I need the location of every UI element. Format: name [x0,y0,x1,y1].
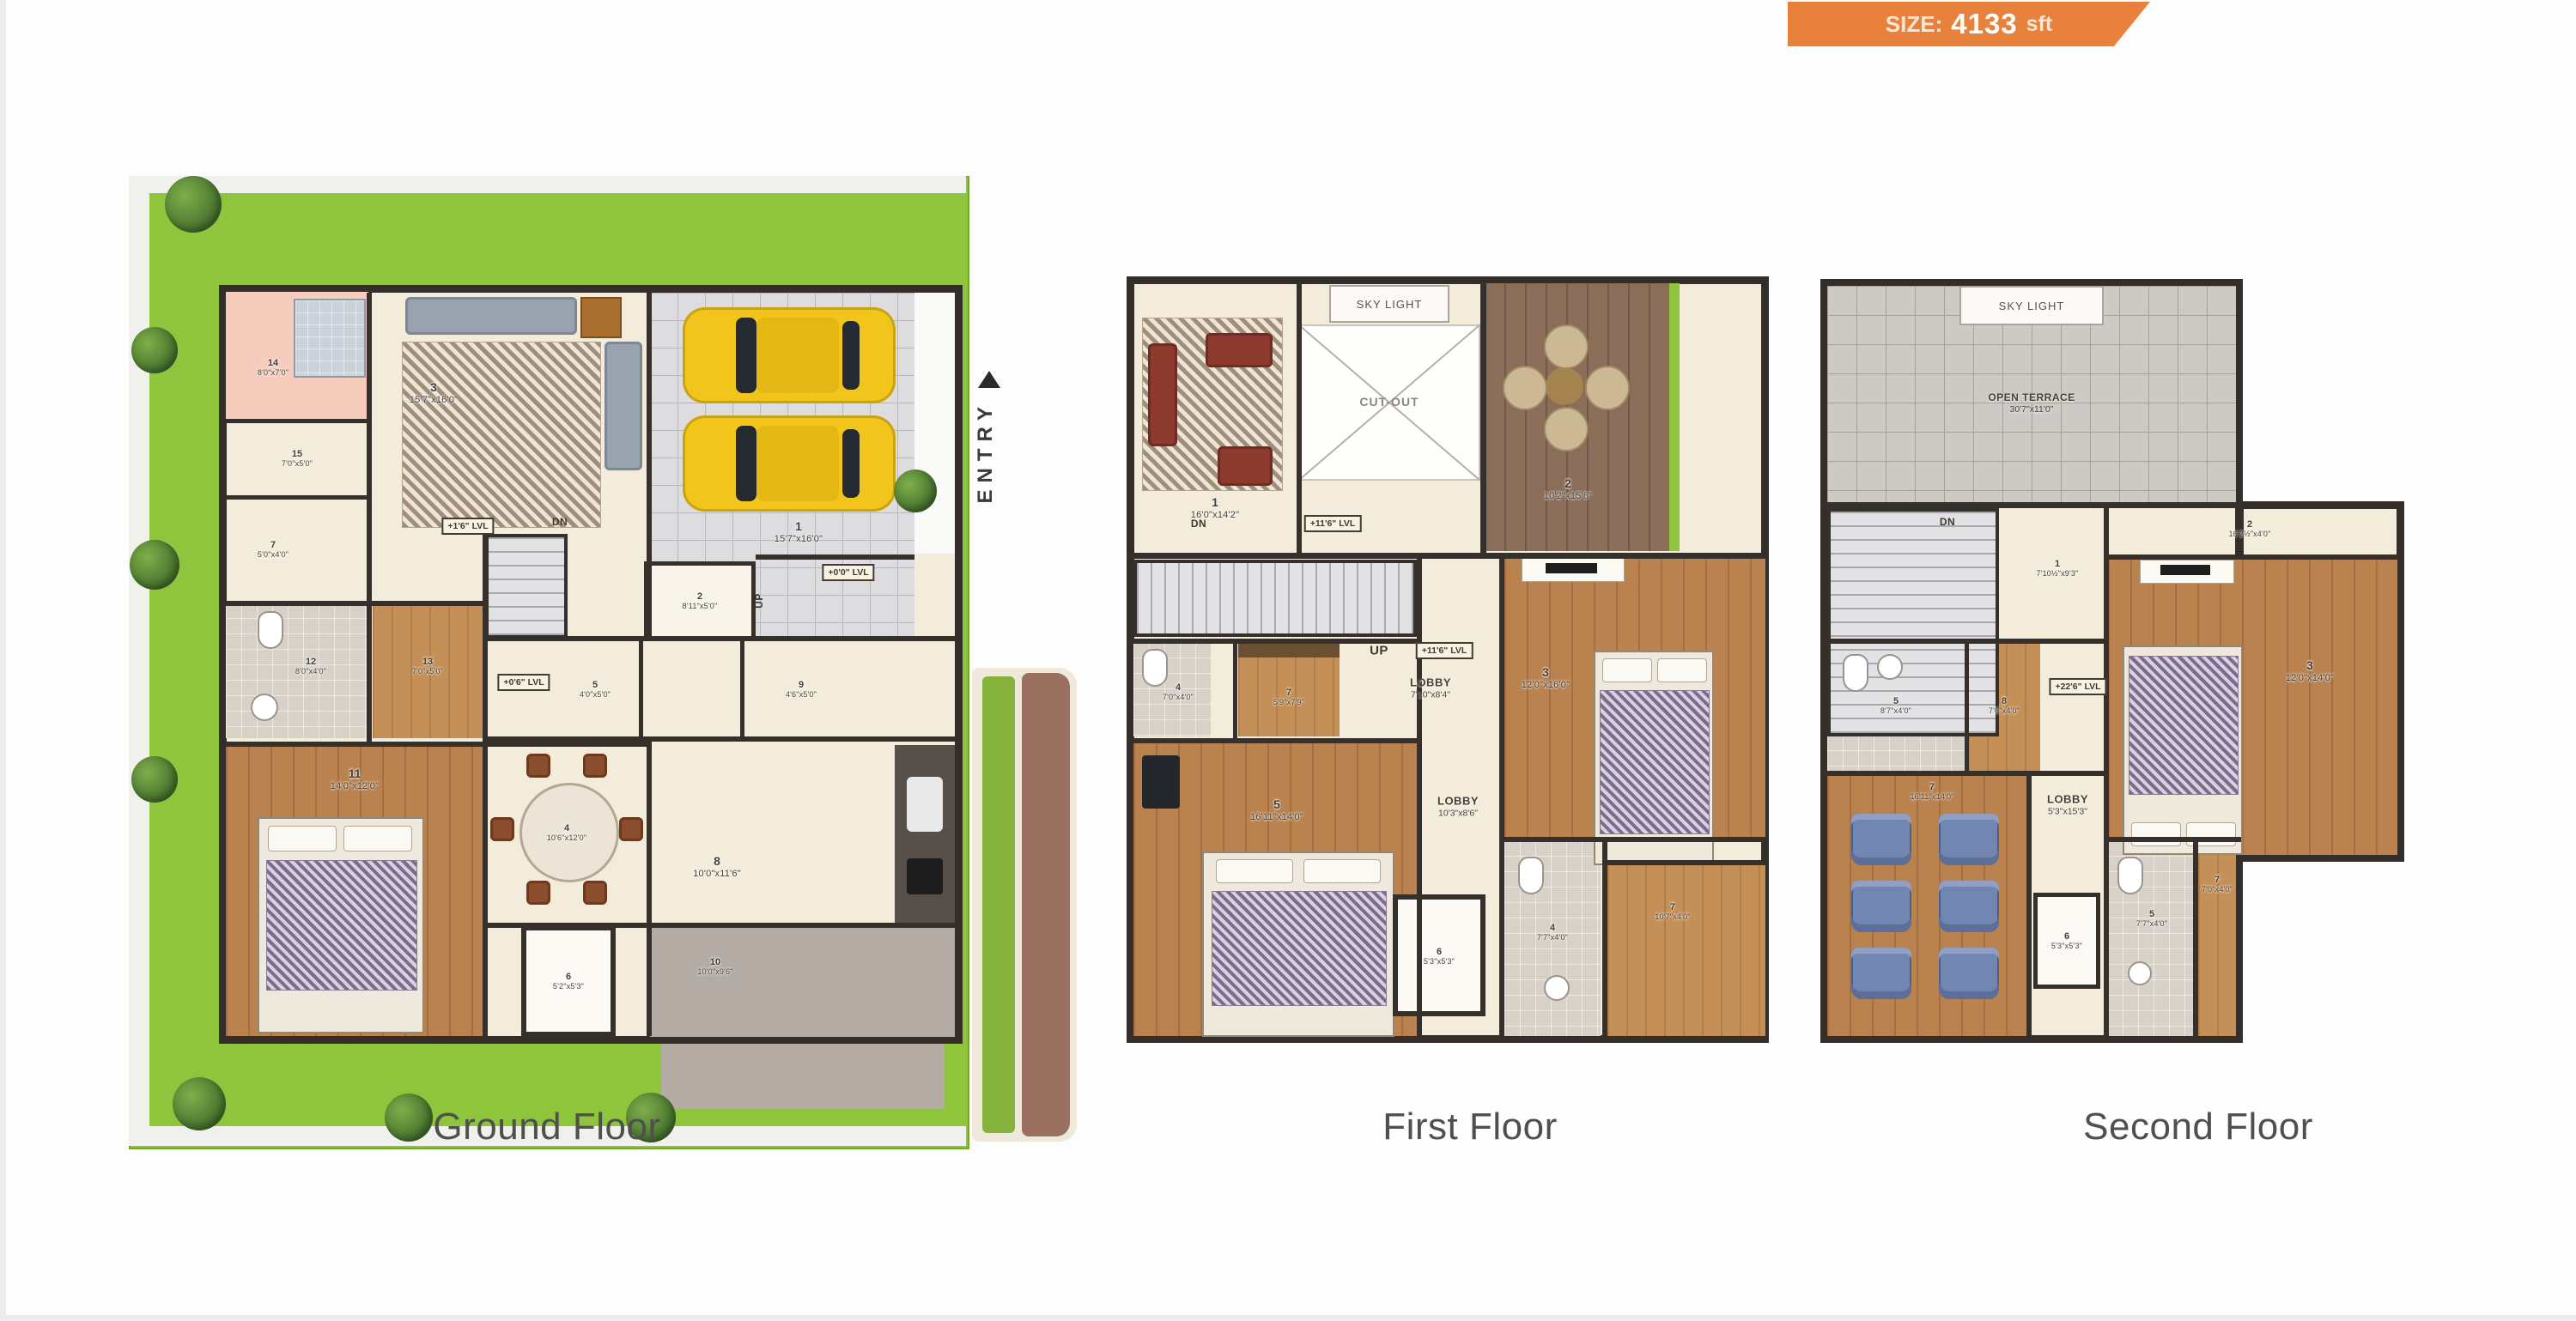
room-dims: 7'0"x4'0" [1163,693,1194,701]
tv-icon [2160,565,2210,575]
recliner-icon [1851,814,1911,865]
room-label-bedroom5: 5 16'11"x14'0" [1250,798,1303,822]
room-dims: 10'6"x12'0" [547,833,587,842]
sofa-icon [605,342,642,470]
room-number: 6 [1437,947,1442,957]
room-dims: 10'0"x11'6" [693,869,741,879]
room-number: 7 [1670,902,1675,912]
room-dims: 5'0"x4'0" [258,550,289,559]
room-number: 4 [564,823,569,833]
wall [1499,837,1765,842]
stair-up-label: UP [753,593,765,609]
sofa-icon [405,297,577,335]
room-dims: 12'0"x16'0" [1522,680,1570,690]
room-dims: 16'11"x14'0" [1910,792,1953,801]
room-dims: 12'0"x14'0" [2286,673,2334,683]
room-number: 3 [2306,659,2313,673]
room-number: 11 [349,767,361,781]
side-strip [914,293,955,554]
lobby-name: LOBBY [1437,796,1479,809]
lobby-name: LOBBY [2047,794,2088,807]
wall [1820,502,2243,508]
terrace-label: OPEN TERRACE 30'7"x11'0" [1988,392,2075,415]
patio-table-icon [1546,367,1583,405]
room-label-7: 7 5'0"x4'0" [258,540,289,559]
recliner-icon [1939,881,1999,932]
wall [226,742,650,747]
utility-patio [661,1044,945,1109]
room-number: 7 [1929,782,1935,792]
skylight-label: SKY LIGHT [1999,300,2065,312]
room-label-bedroom11: 11 14'0"x12'0" [331,767,379,791]
chair-icon [583,754,607,778]
room-number: 7 [270,540,276,550]
basin-icon [2128,961,2152,985]
chair-icon [583,881,607,905]
basin-icon [251,694,278,721]
room-dims: 16'2½"x4'0" [2228,530,2270,538]
room-label-bedroom3: 3 12'0"x14'0" [2286,659,2334,683]
room-label-15: 15 7'0"x5'0" [282,449,313,468]
entry-arrow-icon [978,371,1000,388]
room-label-toilet4b: 4 7'7"x4'0" [1537,923,1568,942]
room-number: 2 [697,591,702,602]
dress-floor [1607,865,1765,1036]
room-label-dress13: 13 7'0"x5'0" [412,657,443,676]
room-label-theater: 7 16'11"x14'0" [1910,782,1953,801]
tree-icon [130,540,179,590]
room-label-utility: 10 10'0"x9'6" [697,957,732,976]
basin-icon [1877,654,1903,680]
terrace-name: OPEN TERRACE [1988,392,2075,404]
stair-dn-label: DN [1191,518,1206,530]
recliner-icon [1851,948,1911,999]
wall [1233,639,1237,738]
room-number: 5 [592,680,598,690]
room-number: 6 [566,972,571,982]
tree-icon [894,470,937,512]
kitchen-counter-icon [895,745,955,923]
wall [1297,283,1302,553]
entry-label: ENTRY [974,400,998,503]
room-number: 15 [292,449,302,459]
tv-icon [1546,563,1597,573]
bed-icon [2123,645,2243,855]
room-dims: 16'11"x14'0" [1250,812,1303,822]
room-dims: 7'7"x4'0" [1537,933,1568,942]
wall [756,554,914,560]
room-number: 9 [799,680,804,690]
wall [2104,837,2241,842]
lobby-name: LOBBY [1410,677,1451,690]
page-edge-bottom [0,1315,2576,1321]
driveway-grass-strip [982,676,1015,1133]
toilet-icon [1843,654,1868,692]
wall [483,923,956,928]
room-label-family: 1 16'0"x14'2" [1191,496,1239,520]
room-dims: 5'3"x5'3" [2051,942,2082,950]
room-number: 5 [1273,798,1280,812]
room-dims: 15'7"x16'0" [775,534,823,544]
wall [2193,840,2198,1036]
level-label: +11'6" LVL [1416,642,1473,659]
level-label: +1'6" LVL [441,518,494,535]
page-edge-left [0,0,6,1321]
recliner-icon [1939,814,1999,865]
tree-icon [173,1077,226,1130]
room-number: 7 [1286,688,1291,698]
bed-icon [1202,851,1394,1037]
wall [1602,837,1607,1036]
room-dims: 7'0"x4'0" [2202,885,2233,894]
wall [1480,283,1486,553]
staircase [1827,508,1999,736]
room-dims: 14'0"x12'0" [331,781,379,791]
room-dims: 8'11"x5'0" [683,602,718,610]
walkway-left [129,176,149,1146]
wardrobe-icon [1238,642,1340,657]
room-dims: 4'6"x5'0" [786,690,817,699]
staircase [1133,560,1417,637]
room-label-carpark: 1 15'7"x16'0" [775,520,823,544]
room-label-6: 6 5'3"x5'3" [1424,947,1455,966]
wall [1417,559,1422,1036]
wall [1965,642,1969,771]
room-label-dining: 4 10'6"x12'0" [547,823,587,842]
walkway-top [129,176,966,193]
staircase [485,534,568,639]
room-number: 1 [1212,496,1218,510]
lobby-label: LOBBY 7'10"x8'4" [1410,677,1451,700]
dress-floor [2198,840,2236,1036]
recliner-icon [1851,881,1911,932]
room-dims: 8'7"x4'0" [1880,706,1911,715]
driveway-paving [1022,673,1070,1136]
room-dims: 7'0"x5'0" [412,667,443,676]
room-dims: 10'2"x15'6" [1544,491,1592,501]
size-unit: sft [2026,12,2053,37]
lobby-dims: 5'3"x15'3" [2048,806,2087,816]
chair-icon [526,881,550,905]
recliner-icon [1939,948,1999,999]
patio-chair-icon [1585,366,1630,410]
patio-chair-icon [1544,324,1589,369]
wall [226,419,367,423]
ground-floor-title: Ground Floor [433,1106,660,1148]
room-label-bedroom3: 3 12'0"x16'0" [1522,666,1570,690]
room-label-kitchen: 8 10'0"x11'6" [693,855,741,879]
room-label-5: 5 4'0"x5'0" [580,680,611,699]
chair-icon [619,817,643,841]
wall [2026,774,2032,1036]
room-label-dress7: 7 5'9"x7'9" [1273,688,1304,706]
room-label-bath5: 5 8'7"x4'0" [1880,696,1911,715]
floor-plan-sheet: SIZE: 4133 sft 1 [0,0,2576,1321]
room-label-wardrobe8: 8 7'6"x4'0" [1989,696,2020,715]
toilet-icon [2117,857,2143,894]
deck-green-strip [1669,283,1680,551]
room-label-6: 6 5'2"x5'3" [553,972,584,991]
terrace-dims: 30'7"x11'0" [2010,404,2054,415]
level-label: +0'0" LVL [822,564,874,581]
room-number: 12 [306,657,316,667]
tree-icon [131,756,178,803]
stair-dn-label: DN [1940,516,1955,528]
shower-icon [294,299,366,378]
cutout-label: CUT-OUT [1359,395,1419,409]
size-value: 4133 [1951,8,2017,40]
wall [1820,771,2104,776]
room-number: 2 [1564,477,1571,491]
room-dims: 5'3"x5'3" [1424,957,1455,966]
room-dims: 10'0"x9'6" [697,967,732,976]
second-floor-title: Second Floor [2083,1106,2313,1148]
first-floor-title: First Floor [1382,1106,1558,1148]
room-number: 3 [430,381,437,395]
room-number: 3 [1542,666,1549,680]
room-number: 7 [2215,875,2220,885]
patio-chair-icon [1503,366,1547,410]
skylight-label: SKY LIGHT [1357,298,1423,311]
toilet-icon [1518,857,1544,894]
wall [2108,554,2400,560]
tv-console-icon [1218,446,1273,486]
room-label-closet: 2 16'2½"x4'0" [2228,519,2270,538]
stair-dn-label: DN [552,516,568,528]
wall [483,736,956,742]
room-dims: 7'6"x4'0" [1989,706,2020,715]
room-dims: 8'0"x7'0" [258,368,289,377]
chair-icon [526,754,550,778]
rug-icon [402,342,601,528]
room-label-toilet5b: 5 7'7"x4'0" [2136,909,2167,928]
room-label-6: 6 5'3"x5'3" [2051,931,2082,950]
utility-floor [650,925,955,1037]
sofa-icon [1206,333,1273,367]
wall [647,293,652,554]
car-icon [683,415,896,512]
room-label-dress7b: 7 10'7"x4'0" [1655,902,1690,921]
wall [639,639,643,736]
size-label: SIZE: [1886,11,1942,38]
room-number: 8 [2002,696,2007,706]
tree-icon [165,176,222,233]
wall [367,293,372,742]
level-label: +22'6" LVL [2049,678,2106,695]
room-number: 2 [2247,519,2252,530]
lobby-dims: 10'3"x8'6" [1438,808,1478,818]
room-label-passage: 1 7'10½"x9'3" [2036,559,2078,578]
room-label-9: 9 4'6"x5'0" [786,680,817,699]
wall [226,601,483,606]
wall [1127,738,1417,743]
room-label-bath12: 12 8'0"x4'0" [295,657,326,676]
bed-icon [258,817,424,1033]
wall [483,636,956,641]
level-label: +0'6" LVL [497,674,550,691]
room-number: 5 [1893,696,1899,706]
room-number: 13 [422,657,433,667]
wall [1607,860,1765,865]
lobby-label: LOBBY 10'3"x8'6" [1437,796,1479,819]
toilet-icon [258,611,283,649]
wall [647,554,652,640]
level-label: +11'6" LVL [1304,515,1362,532]
room-number: 1 [2055,559,2060,569]
wall [1820,639,2104,644]
side-table-icon [580,297,622,338]
stair-up-label: UP [1370,644,1388,658]
skylight-box: SKY LIGHT [1329,285,1449,323]
basin-icon [1544,975,1570,1001]
room-number: 5 [2149,909,2154,919]
sink-icon [907,777,943,832]
desk-icon [1142,755,1180,809]
room-number: 14 [268,358,278,368]
room-dims: 10'7"x4'0" [1655,912,1690,921]
tree-icon [131,327,178,373]
room-dims: 5'2"x5'3" [553,982,584,991]
wall [226,495,367,500]
room-number: 1 [795,520,802,534]
lobby-label: LOBBY 5'3"x15'3" [2047,794,2088,817]
toilet-icon [1142,649,1168,687]
room-number: 6 [2064,931,2069,942]
size-badge: SIZE: 4133 sft [1788,2,2150,46]
chair-icon [490,817,514,841]
tree-icon [385,1094,433,1142]
room-label-dress7b: 7 7'0"x4'0" [2202,875,2233,894]
room-number: 4 [1550,923,1555,933]
room-dims: 7'0"x5'0" [282,459,313,468]
room-dims: 7'10½"x9'3" [2036,569,2078,578]
wall [1127,553,1765,559]
room-number: 8 [714,855,720,869]
room-dims: 7'7"x4'0" [2136,919,2167,928]
room-label-toilet4: 4 7'0"x4'0" [1163,682,1194,701]
patio-chair-icon [1544,407,1589,451]
wall [740,639,744,736]
room-dims: 15'7"x16'0" [410,395,458,405]
bed-icon [1594,651,1714,865]
room-label-sitout2: 2 8'11"x5'0" [683,591,718,610]
wall [2104,502,2109,1036]
room-label-living: 3 15'7"x16'0" [410,381,458,405]
room-dims: 8'0"x4'0" [295,667,326,676]
wall [483,534,488,1036]
wall [1499,559,1504,1036]
room-label-bath14: 14 8'0"x7'0" [258,358,289,377]
room-label-sitout: 2 10'2"x15'6" [1544,477,1592,501]
lobby-dims: 7'10"x8'4" [1411,689,1450,700]
wall [647,736,652,1036]
room-number: 4 [1176,682,1181,693]
room-dims: 5'9"x7'9" [1273,698,1304,706]
sofa-icon [1148,343,1177,446]
room-dims: 4'0"x5'0" [580,690,611,699]
room-number: 10 [710,957,720,967]
skylight-box: SKY LIGHT [1959,286,2104,325]
stove-icon [907,858,943,894]
car-icon [683,307,896,403]
